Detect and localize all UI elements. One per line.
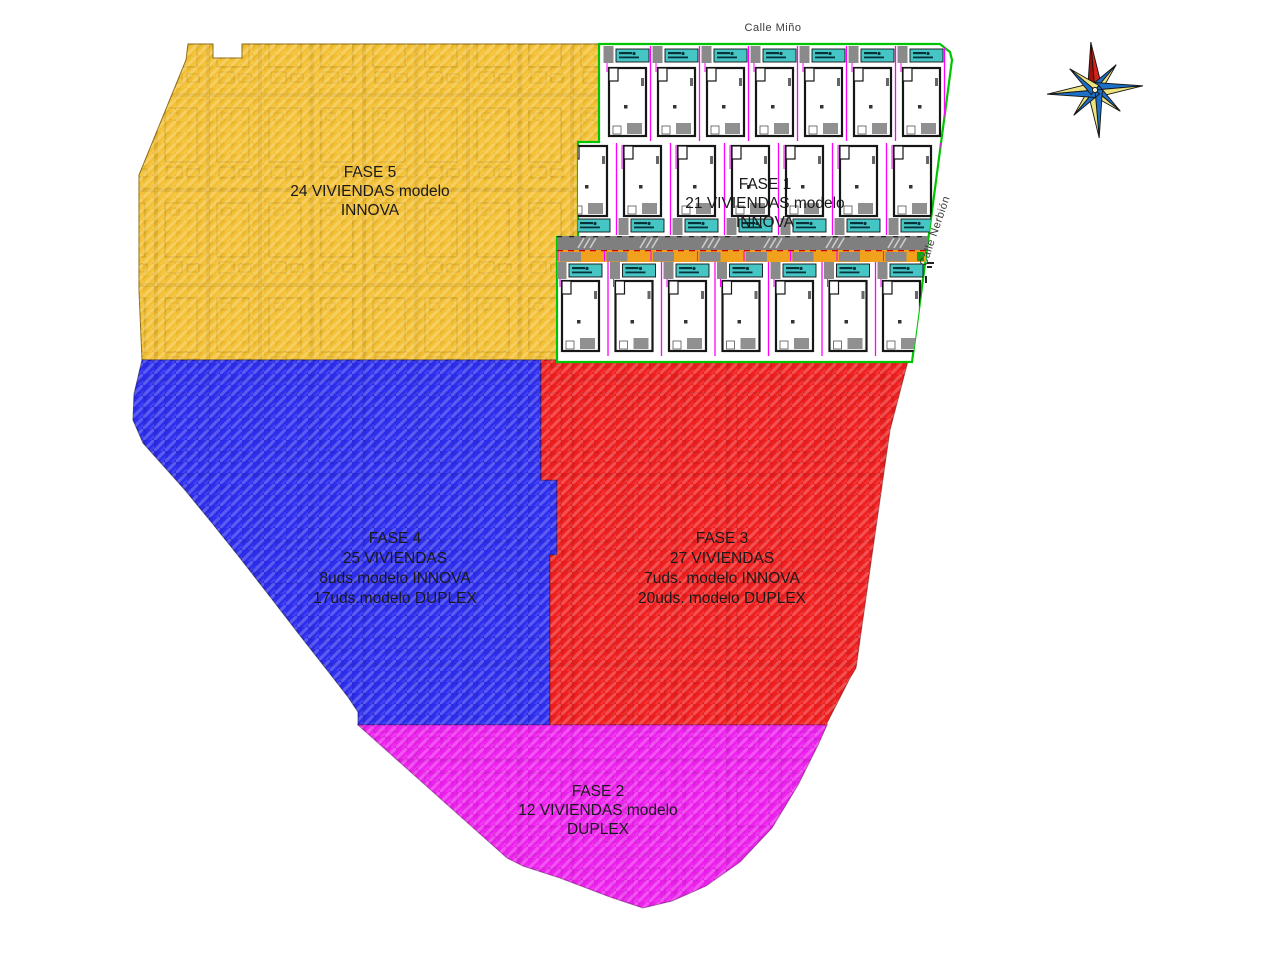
plate-dot — [779, 52, 782, 55]
plate-text-mark — [733, 272, 753, 274]
wall-mark — [935, 78, 938, 86]
plate-text-mark — [913, 52, 926, 54]
plate-dot — [863, 222, 866, 225]
driveway-stub — [717, 262, 727, 279]
plot-plate — [783, 264, 816, 277]
plot-plate — [910, 49, 943, 62]
wall-mark — [701, 291, 704, 299]
driveway-stub — [610, 262, 620, 279]
plot-plate — [714, 49, 747, 62]
door-mark — [684, 320, 688, 324]
plate-dot — [701, 222, 704, 225]
svg-text:DUPLEX: DUPLEX — [567, 821, 630, 838]
door-mark — [631, 320, 635, 324]
house-notch — [669, 281, 678, 294]
plate-dot — [746, 267, 749, 270]
house-unit — [653, 46, 700, 141]
svg-text:27 VIVIENDAS: 27 VIVIENDAS — [670, 550, 774, 567]
patio-pad — [588, 203, 603, 214]
plate-text-mark — [634, 227, 654, 229]
patio-pad — [912, 203, 927, 214]
driveway-stub — [557, 262, 567, 279]
plate-dot — [681, 52, 684, 55]
plate-text-mark — [796, 222, 809, 224]
wall-mark — [837, 78, 840, 86]
door-mark — [771, 105, 775, 109]
door-mark — [918, 105, 922, 109]
plate-text-mark — [634, 222, 647, 224]
plate-dot — [926, 52, 929, 55]
plate-text-mark — [717, 52, 730, 54]
house-notch — [707, 68, 716, 81]
plate-dot — [853, 267, 856, 270]
wall-mark — [872, 156, 875, 164]
plate-dot — [647, 222, 650, 225]
plot-plate — [616, 49, 649, 62]
plot-plate — [623, 264, 656, 277]
patio-pad — [725, 123, 740, 134]
plate-text-mark — [796, 227, 816, 229]
house-notch — [616, 281, 625, 294]
parking-block — [653, 252, 674, 262]
plate-dot — [877, 52, 880, 55]
plate-text-mark — [733, 267, 746, 269]
plot-plate — [837, 264, 870, 277]
compass-hub — [1092, 87, 1098, 93]
patio-pad — [872, 123, 887, 134]
svg-text:20uds. modelo DUPLEX: 20uds. modelo DUPLEX — [638, 590, 807, 607]
fase4-region — [133, 360, 557, 725]
house-notch — [658, 68, 667, 81]
patio-pad — [921, 123, 936, 134]
wall-mark — [690, 78, 693, 86]
house-notch — [830, 281, 839, 294]
svg-text:FASE 2: FASE 2 — [572, 783, 625, 800]
driveway-stub — [800, 46, 810, 63]
driveway-stub — [619, 218, 629, 235]
plot-plate — [763, 49, 796, 62]
wall-mark — [818, 156, 821, 164]
house-notch — [732, 146, 741, 159]
patio-pad — [848, 338, 863, 349]
plot-plate — [676, 264, 709, 277]
svg-text:12 VIVIENDAS modelo: 12 VIVIENDAS modelo — [518, 802, 677, 819]
site-plan: FASE 5 24 VIVIENDAS modelo INNOVA FASE 1… — [0, 0, 1280, 960]
plate-text-mark — [815, 52, 828, 54]
svg-text:17uds.modelo DUPLEX: 17uds.modelo DUPLEX — [313, 590, 477, 607]
house-unit — [604, 46, 651, 141]
plate-text-mark — [717, 57, 737, 59]
plate-dot — [593, 222, 596, 225]
plate-text-mark — [904, 227, 924, 229]
wall-mark — [739, 78, 742, 86]
plate-text-mark — [766, 57, 786, 59]
house-notch — [903, 68, 912, 81]
plate-text-mark — [786, 272, 806, 274]
parking-block — [886, 252, 907, 262]
house-notch — [776, 281, 785, 294]
door-mark — [869, 105, 873, 109]
plot-plate — [685, 219, 718, 232]
door-mark — [738, 320, 742, 324]
wall-mark — [755, 291, 758, 299]
plot-plate — [812, 49, 845, 62]
parking-block — [793, 252, 814, 262]
plate-text-mark — [572, 267, 585, 269]
plot-plate — [793, 219, 826, 232]
wall-mark — [862, 291, 865, 299]
driveway-stub — [878, 262, 888, 279]
plate-text-mark — [626, 267, 639, 269]
svg-text:8uds.modelo INNOVA: 8uds.modelo INNOVA — [319, 570, 471, 587]
plate-text-mark — [815, 57, 835, 59]
house-notch — [894, 146, 903, 159]
plate-text-mark — [688, 222, 701, 224]
plate-dot — [692, 267, 695, 270]
plate-dot — [639, 267, 642, 270]
plate-text-mark — [864, 52, 877, 54]
house-unit — [702, 46, 749, 141]
driveway-stub — [889, 218, 899, 235]
door-mark — [845, 320, 849, 324]
patio-pad — [901, 338, 916, 349]
plot-plate — [861, 49, 894, 62]
site-plan-page: FASE 5 24 VIVIENDAS modelo INNOVA FASE 1… — [0, 0, 1280, 960]
door-mark — [639, 185, 643, 189]
door-mark — [791, 320, 795, 324]
wall-mark — [764, 156, 767, 164]
plot-plate — [847, 219, 880, 232]
driveway-stub — [824, 262, 834, 279]
house-notch — [786, 146, 795, 159]
driveway-stub — [849, 46, 859, 63]
svg-text:25 VIVIENDAS: 25 VIVIENDAS — [343, 550, 447, 567]
driveway-stub — [664, 262, 674, 279]
patio-pad — [642, 203, 657, 214]
driveway-stub — [673, 218, 683, 235]
house-notch — [840, 146, 849, 159]
door-mark — [577, 320, 581, 324]
door-mark — [820, 105, 824, 109]
street-label-top: Calle Miño — [745, 22, 802, 34]
house-unit — [878, 261, 930, 356]
patio-pad — [858, 203, 873, 214]
door-mark — [909, 185, 913, 189]
wall-mark — [926, 156, 929, 164]
house-unit — [898, 46, 945, 141]
svg-text:7uds. modelo INNOVA: 7uds. modelo INNOVA — [644, 570, 800, 587]
wall-mark — [886, 78, 889, 86]
house-unit — [849, 46, 896, 141]
plate-text-mark — [619, 52, 632, 54]
compass-rose-icon — [1043, 38, 1147, 142]
parking-block — [746, 252, 767, 262]
plate-text-mark — [572, 272, 592, 274]
wall-mark — [594, 291, 597, 299]
svg-text:FASE 1: FASE 1 — [739, 176, 792, 193]
plate-dot — [632, 52, 635, 55]
svg-text:INNOVA: INNOVA — [341, 202, 400, 219]
plate-text-mark — [580, 222, 593, 224]
door-mark — [855, 185, 859, 189]
plate-text-mark — [840, 272, 860, 274]
svg-text:24 VIVIENDAS modelo: 24 VIVIENDAS modelo — [290, 183, 449, 200]
wall-mark — [602, 156, 605, 164]
plate-text-mark — [766, 52, 779, 54]
parking-block — [839, 252, 860, 262]
house-notch — [609, 68, 618, 81]
wall-mark — [641, 78, 644, 86]
door-mark — [585, 185, 589, 189]
plate-text-mark — [688, 227, 708, 229]
house-notch — [883, 281, 892, 294]
fase1-road — [557, 236, 928, 262]
plate-text-mark — [913, 57, 933, 59]
svg-text:21 VIVIENDAS modelo: 21 VIVIENDAS modelo — [685, 195, 844, 212]
plate-text-mark — [850, 222, 863, 224]
driveway-stub — [751, 46, 761, 63]
plate-dot — [730, 52, 733, 55]
plate-text-mark — [668, 52, 681, 54]
plate-dot — [799, 267, 802, 270]
plot-plate — [631, 219, 664, 232]
plot-plate — [569, 264, 602, 277]
plot-plate — [665, 49, 698, 62]
door-mark — [898, 320, 902, 324]
patio-pad — [676, 123, 691, 134]
wall-mark — [648, 291, 651, 299]
patio-pad — [794, 338, 809, 349]
house-notch — [805, 68, 814, 81]
plate-text-mark — [850, 227, 870, 229]
door-mark — [673, 105, 677, 109]
house-notch — [678, 146, 687, 159]
wall-mark — [808, 291, 811, 299]
svg-text:INNOVA: INNOVA — [736, 214, 795, 231]
patio-pad — [634, 338, 649, 349]
wall-mark — [788, 78, 791, 86]
svg-text:FASE 3: FASE 3 — [696, 530, 749, 547]
plate-text-mark — [904, 222, 917, 224]
plate-dot — [585, 267, 588, 270]
plate-text-mark — [679, 267, 692, 269]
svg-text:FASE 5: FASE 5 — [344, 164, 397, 181]
plot-plate — [577, 219, 610, 232]
plate-text-mark — [626, 272, 646, 274]
door-mark — [624, 105, 628, 109]
wall-mark — [656, 156, 659, 164]
plate-text-mark — [668, 57, 688, 59]
patio-pad — [627, 123, 642, 134]
plate-text-mark — [679, 272, 699, 274]
house-notch — [723, 281, 732, 294]
patio-pad — [823, 123, 838, 134]
door-mark — [801, 185, 805, 189]
driveway-stub — [653, 46, 663, 63]
parking-block — [700, 252, 721, 262]
parking-block — [560, 252, 581, 262]
plot-plate — [890, 264, 923, 277]
plot-plate — [730, 264, 763, 277]
house-unit — [800, 46, 847, 141]
house-notch — [854, 68, 863, 81]
plate-dot — [828, 52, 831, 55]
plate-text-mark — [580, 227, 600, 229]
door-mark — [693, 185, 697, 189]
house-unit — [751, 46, 798, 141]
plate-dot — [917, 222, 920, 225]
plate-text-mark — [786, 267, 799, 269]
house-notch — [756, 68, 765, 81]
driveway-stub — [604, 46, 614, 63]
wall-mark — [915, 291, 918, 299]
house-notch — [624, 146, 633, 159]
plate-text-mark — [893, 272, 913, 274]
door-mark — [722, 105, 726, 109]
svg-text:FASE 4: FASE 4 — [369, 530, 422, 547]
plate-dot — [809, 222, 812, 225]
driveway-stub — [771, 262, 781, 279]
patio-pad — [774, 123, 789, 134]
parking-block — [607, 252, 628, 262]
house-notch — [562, 281, 571, 294]
plate-text-mark — [619, 57, 639, 59]
wall-mark — [710, 156, 713, 164]
plate-text-mark — [893, 267, 906, 269]
patio-pad — [580, 338, 595, 349]
plate-text-mark — [840, 267, 853, 269]
patio-pad — [687, 338, 702, 349]
plate-dot — [906, 267, 909, 270]
driveway-stub — [898, 46, 908, 63]
driveway-stub — [702, 46, 712, 63]
plate-text-mark — [864, 57, 884, 59]
driveway-stub — [835, 218, 845, 235]
patio-pad — [741, 338, 756, 349]
